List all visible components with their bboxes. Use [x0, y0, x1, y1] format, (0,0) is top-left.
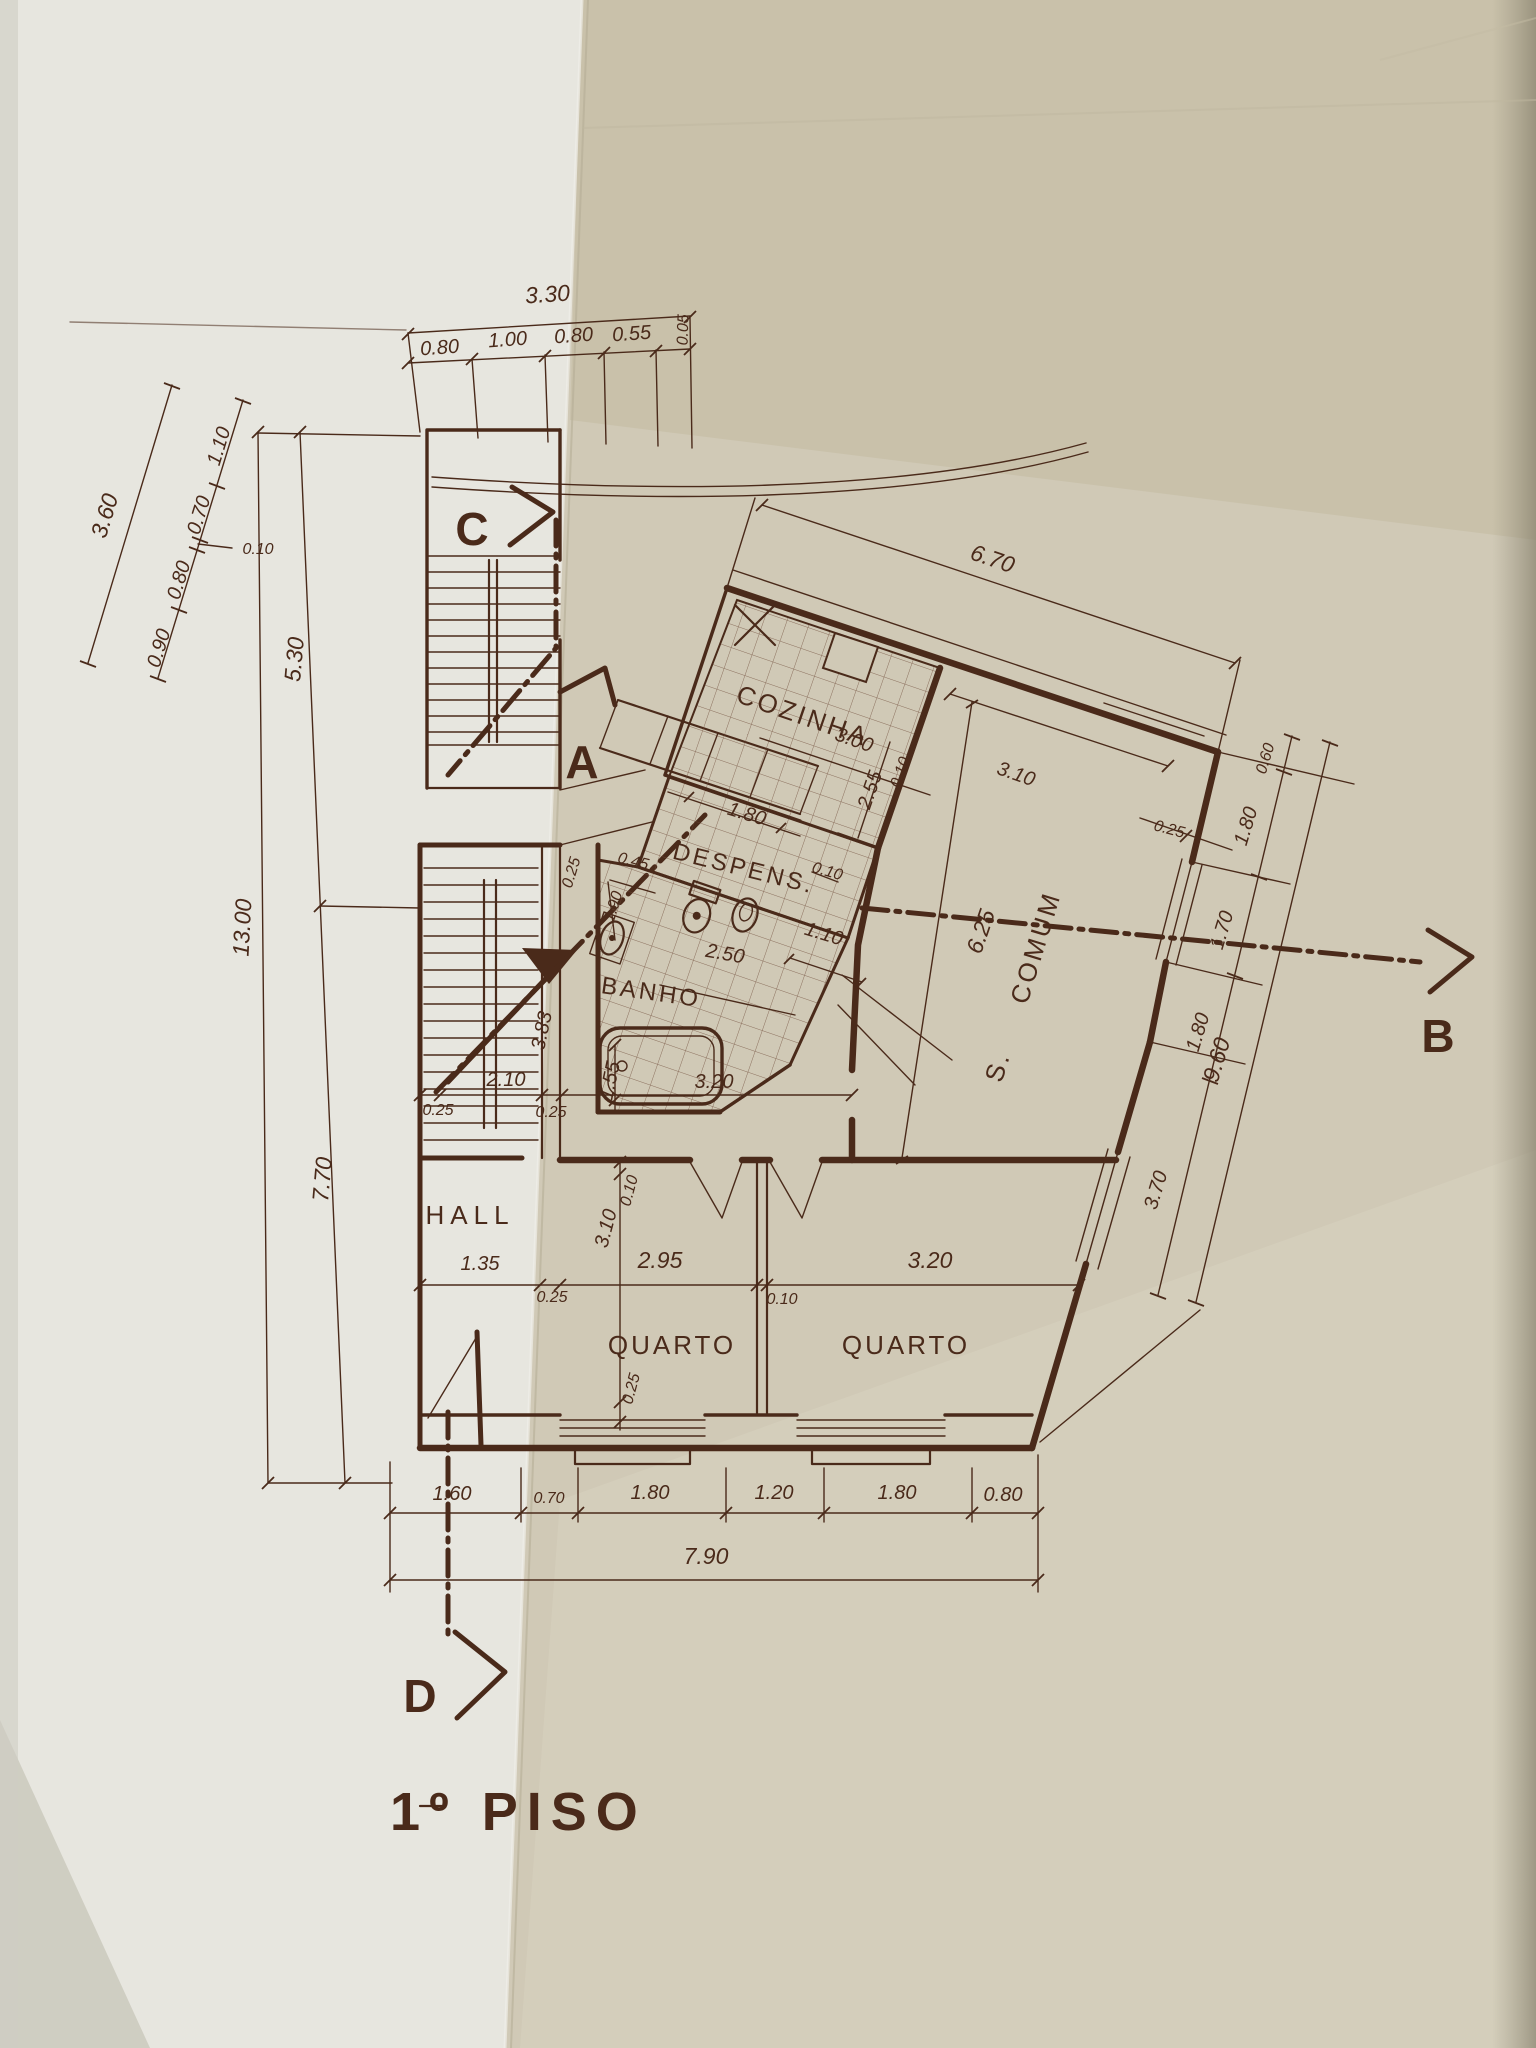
dim-label: 0.70: [533, 1490, 564, 1507]
dim-label: 1.20: [755, 1482, 794, 1504]
dim-label: 0.55: [611, 322, 652, 347]
dim-label: 0.05: [674, 314, 692, 346]
dim-label: 1.00: [487, 328, 527, 353]
room-label-bedroom1: QUARTO: [608, 1330, 736, 1360]
dim-label: 1.80: [631, 1482, 670, 1504]
dim-label: 0.10: [242, 541, 273, 558]
dim-label: 0.10: [766, 1291, 797, 1308]
dim-label: 0.25: [535, 1104, 566, 1121]
dim-label: 0.80: [419, 336, 459, 361]
dim-label: 0.80: [984, 1484, 1023, 1506]
dim-label: 1.80: [878, 1482, 917, 1504]
dim-label: 2.95: [637, 1247, 683, 1273]
dim-label: 13.00: [228, 898, 257, 957]
section-marker-c: C: [455, 503, 488, 555]
room-label-bedroom2: QUARTO: [842, 1330, 970, 1360]
dim-label: 5.30: [279, 636, 309, 683]
section-marker-a: A: [565, 736, 598, 788]
dim-label: 0.80: [553, 324, 593, 349]
dim-total-bottom: 7.90: [684, 1543, 729, 1569]
dim-label: 1.60: [433, 1483, 472, 1505]
dim-label: 0.25: [536, 1289, 567, 1306]
dim-label: 1.35: [461, 1253, 501, 1275]
section-marker-b: B: [1421, 1010, 1454, 1062]
page-title: 1º PISO: [390, 1782, 647, 1842]
dim-label: 3.20: [908, 1247, 953, 1273]
floor-plan-drawing: COZINHA DESPENS. BANHO S. COMUM HALL QUA…: [0, 0, 1536, 2048]
dim-label: 2.10: [486, 1069, 526, 1091]
scanned-floor-plan-page: COZINHA DESPENS. BANHO S. COMUM HALL QUA…: [0, 0, 1536, 2048]
room-label-hall: HALL: [425, 1200, 514, 1230]
dim-top-total: 3.30: [524, 279, 571, 308]
section-marker-d: D: [403, 1670, 436, 1722]
dim-label: 0.25: [422, 1102, 453, 1119]
dim-label: 7.70: [307, 1156, 337, 1203]
dim-label: 3.20: [695, 1071, 734, 1093]
